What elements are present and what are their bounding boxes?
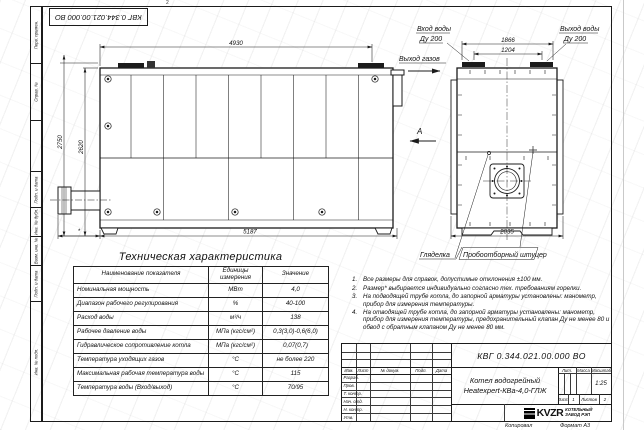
tech-characteristics: Техническая характеристика Наименование …	[73, 251, 328, 396]
side-strip-left	[451, 80, 457, 214]
kvzr-logo-icon	[524, 408, 535, 419]
note-item: 4.На отводящей трубе котла, до запорной …	[352, 309, 614, 331]
sheet-number: 1	[568, 394, 579, 404]
table-row: Температура уходящих газов°Сне более 220	[74, 353, 329, 367]
dim-2035: 2035	[499, 229, 514, 236]
title-block: Изм. Лист № докум. Подп. Дата Разраб. Пр…	[341, 343, 612, 422]
notes-list: 1.Все размеры для справок, допустимые от…	[352, 276, 614, 332]
sign-nachotd: Нач. отд.	[342, 397, 370, 405]
water-inlet-flange	[462, 62, 485, 67]
kvzr-logo-text: KVZR	[537, 407, 564, 419]
note-item: 2.Размер* выбирается индивидуально согла…	[352, 285, 614, 292]
format-label: Формат А3	[560, 423, 590, 429]
sign-razrab: Разраб.	[342, 374, 370, 382]
dim-2620: 2620	[78, 140, 85, 155]
sheets-label: Листов	[579, 394, 599, 404]
note-item: 1.Все размеры для справок, допустимые от…	[352, 276, 614, 283]
lifting-pad-left	[118, 63, 144, 68]
doc-number: КВГ 0.344.021.00.000 ВО	[452, 344, 611, 367]
outlet-label-2: Ду 200	[563, 36, 586, 43]
sampling-port-label: Пробоотборный штуцер	[463, 251, 547, 259]
sheets-number: 2	[599, 394, 611, 404]
tb-line	[342, 359, 451, 360]
tb-line	[370, 344, 371, 421]
table-row: Рабочее давление водыМПа (кгс/см²)0,3(3,…	[74, 325, 329, 339]
sign-prov: Пров.	[342, 382, 370, 390]
sign-tkontr: Т. контр.	[342, 390, 370, 398]
dim-4930: 4930	[229, 40, 243, 47]
tb-line	[410, 344, 411, 421]
company-name: КОТЕЛЬНЫЙ ЗАВОД РЭП	[565, 408, 592, 418]
rev-header-dokum: № докум.	[370, 367, 410, 374]
sight-glass-label: Гляделка	[420, 251, 450, 259]
gas-outlet-label: Выход газов	[399, 55, 440, 63]
rev-header-izm: Изм.	[342, 367, 356, 374]
tb-line	[564, 373, 565, 394]
side-strip-right	[557, 80, 563, 214]
col-header-value: Значение	[263, 267, 329, 284]
sheet-label: Лист	[558, 394, 568, 404]
top-lug	[147, 61, 155, 68]
product-name: Котел водогрейный Heatexpert-КВа-4,0-ГЛЖ	[452, 368, 558, 403]
table-row: Гидравлическое сопротивление котлаМПа (к…	[74, 339, 329, 353]
copied-label: Копировал	[505, 423, 532, 429]
tech-table: Наименование показателя Единицы измерени…	[73, 266, 329, 396]
lit-label: Лит.	[558, 367, 576, 373]
sign-utv: Утв.	[342, 413, 370, 421]
note-item: 3.На подводящей трубе котла, до запорной…	[352, 293, 614, 307]
tb-line	[570, 373, 571, 394]
dim-2750: 2750	[57, 135, 64, 150]
lifting-pad-right	[358, 63, 384, 68]
tech-table-title: Техническая характеристика	[73, 251, 328, 263]
dim-burner-star: *	[78, 228, 81, 235]
company-logo: KVZR КОТЕЛЬНЫЙ ЗАВОД РЭП	[505, 405, 611, 421]
tb-line	[432, 344, 433, 421]
rev-header-list: Лист	[356, 367, 370, 374]
table-row: Максимальная рабочая температура воды°С1…	[74, 367, 329, 381]
table-row: Температура воды (Вход/выход)°С70/95	[74, 381, 329, 395]
table-row: Номинальная мощностьМВт4,0	[74, 283, 329, 297]
main-view: 4930 5187 * 2750 2620 Выход газов	[50, 40, 446, 239]
col-header-units: Единицы измерения	[209, 267, 263, 284]
tb-line	[342, 352, 451, 353]
inlet-label-1: Вход воды	[417, 25, 452, 33]
scale-value: 1:25	[591, 373, 611, 394]
table-row: Диапазон рабочего регулирования%40-100	[74, 297, 329, 311]
table-row: Расход водым³/ч138	[74, 311, 329, 325]
dim-1204: 1204	[501, 47, 515, 54]
view-a-label: А	[416, 127, 422, 136]
dim-5187: 5187	[243, 229, 257, 236]
tech-header-row: Наименование показателя Единицы измерени…	[74, 267, 329, 284]
outlet-label-1: Выход воды	[560, 25, 600, 33]
dim-1866: 1866	[501, 37, 515, 44]
sign-nkontr: Н. контр.	[342, 405, 370, 413]
boiler-body	[100, 68, 393, 228]
water-outlet-flange	[530, 62, 553, 67]
rev-header-podp: Подп.	[410, 367, 432, 374]
gas-duct	[391, 70, 404, 106]
rev-header-data: Дата	[432, 367, 451, 374]
mass-label: Масса	[576, 367, 591, 373]
col-header-name: Наименование показателя	[74, 267, 209, 284]
inlet-label-2: Ду 200	[419, 36, 442, 43]
